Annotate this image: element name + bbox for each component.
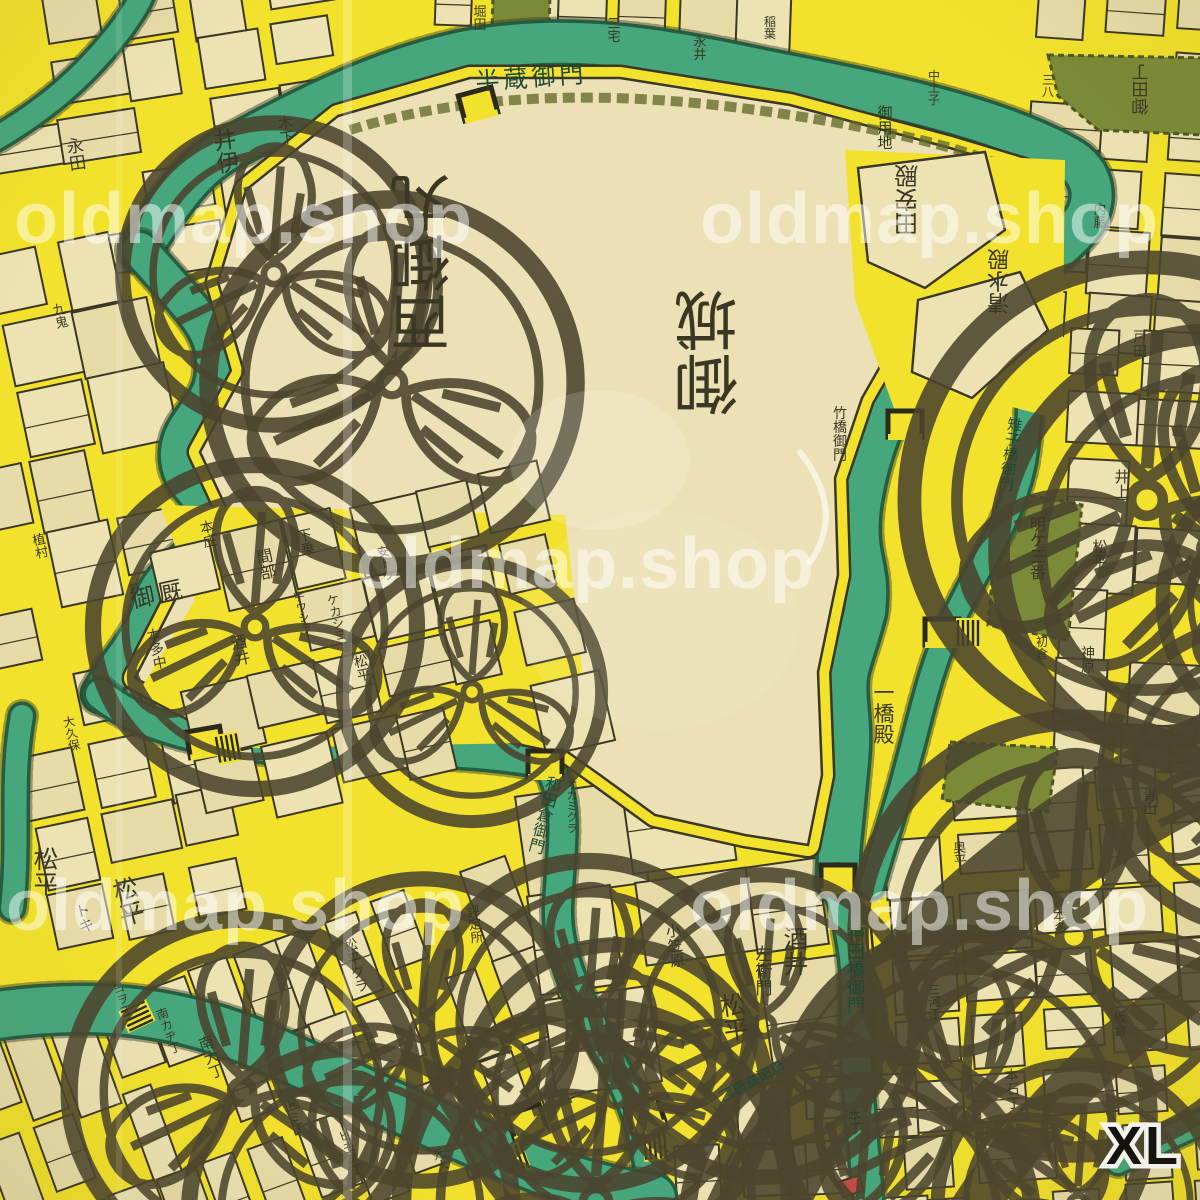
svg-text:竹橋御門: 竹橋御門 — [833, 406, 847, 464]
place-label: 井上 — [1114, 469, 1129, 501]
svg-text:オカミクラ: オカミクラ — [567, 778, 578, 835]
place-label: 本丁 — [848, 1108, 863, 1137]
svg-text:本丁: 本丁 — [848, 1108, 863, 1137]
svg-text:中土子: 中土子 — [928, 68, 940, 107]
place-label: 御田丁 — [1132, 62, 1149, 115]
city-block — [270, 15, 333, 64]
city-block — [198, 29, 266, 89]
place-label: 中土子 — [928, 68, 940, 107]
watermark-text: oldmap.shop — [690, 866, 1149, 946]
city-block — [1177, 0, 1200, 32]
svg-text:一橋殿: 一橋殿 — [874, 681, 895, 747]
svg-text:板倉: 板倉 — [1113, 1010, 1128, 1039]
svg-text:青山: 青山 — [1143, 788, 1157, 818]
place-label: 御城 — [674, 282, 738, 417]
old-map-screenshot: 西御丸御城半蔵御門田安殿清水殿一橋殿神田橋御門和田倉御門雉子橋御門呉服橋御門竹橋… — [0, 0, 1200, 1200]
place-label: 明ケ三番 — [1030, 517, 1046, 582]
place-label: 左衛門 — [756, 945, 773, 998]
place-label: 板倉 — [1113, 1010, 1128, 1039]
place-label: 青山 — [1143, 788, 1157, 818]
place-label: 竹橋御門 — [833, 406, 847, 464]
svg-text:奥平: 奥平 — [953, 840, 968, 869]
place-label: 戸田 — [1133, 331, 1147, 360]
place-label: 初倉 — [1036, 635, 1048, 661]
place-label: 稲葉 — [764, 15, 776, 41]
watermark-text: oldmap.shop — [14, 179, 473, 259]
svg-text:井上: 井上 — [1114, 469, 1129, 501]
city-block — [17, 379, 95, 457]
svg-text:御城: 御城 — [674, 282, 738, 417]
place-label: 永井 — [693, 34, 706, 62]
place-label: 三八 — [1042, 73, 1054, 99]
svg-text:戸田: 戸田 — [1133, 331, 1147, 360]
place-label: 三宅 — [607, 16, 620, 44]
svg-text:稲葉: 稲葉 — [764, 15, 776, 41]
svg-text:神原: 神原 — [1081, 646, 1095, 676]
svg-text:三宅: 三宅 — [607, 16, 620, 44]
city-block — [1036, 0, 1087, 40]
place-label: オカミクラ — [567, 778, 578, 835]
svg-text:三八: 三八 — [1042, 73, 1054, 99]
edo-map-canvas: 西御丸御城半蔵御門田安殿清水殿一橋殿神田橋御門和田倉御門雉子橋御門呉服橋御門竹橋… — [0, 0, 1200, 1200]
place-label: 御用地 — [877, 105, 892, 152]
paper-shine — [510, 390, 690, 530]
city-block — [1161, 173, 1200, 239]
city-block — [123, 39, 182, 102]
place-label: 松平 — [1092, 539, 1107, 571]
svg-text:御田丁: 御田丁 — [1132, 62, 1149, 115]
watermark-text: oldmap.shop — [700, 179, 1159, 259]
svg-text:松平: 松平 — [1092, 539, 1107, 571]
svg-text:初倉: 初倉 — [1036, 635, 1048, 661]
svg-text:堀田: 堀田 — [473, 4, 486, 32]
place-label: 一橋殿 — [874, 681, 895, 747]
place-label: 堀田 — [473, 4, 486, 32]
watermark-text: oldmap.shop — [356, 524, 815, 604]
svg-text:左衛門: 左衛門 — [756, 945, 773, 998]
city-block — [1105, 0, 1166, 36]
svg-text:明ケ三番: 明ケ三番 — [1030, 517, 1046, 582]
watermark-text: oldmap.shop — [6, 866, 465, 946]
place-label: 奥平 — [953, 840, 968, 869]
size-badge-xl: XL — [1106, 1116, 1181, 1176]
place-label: 神原 — [1081, 646, 1095, 676]
svg-text:御用地: 御用地 — [877, 105, 892, 152]
svg-text:永井: 永井 — [693, 34, 706, 62]
